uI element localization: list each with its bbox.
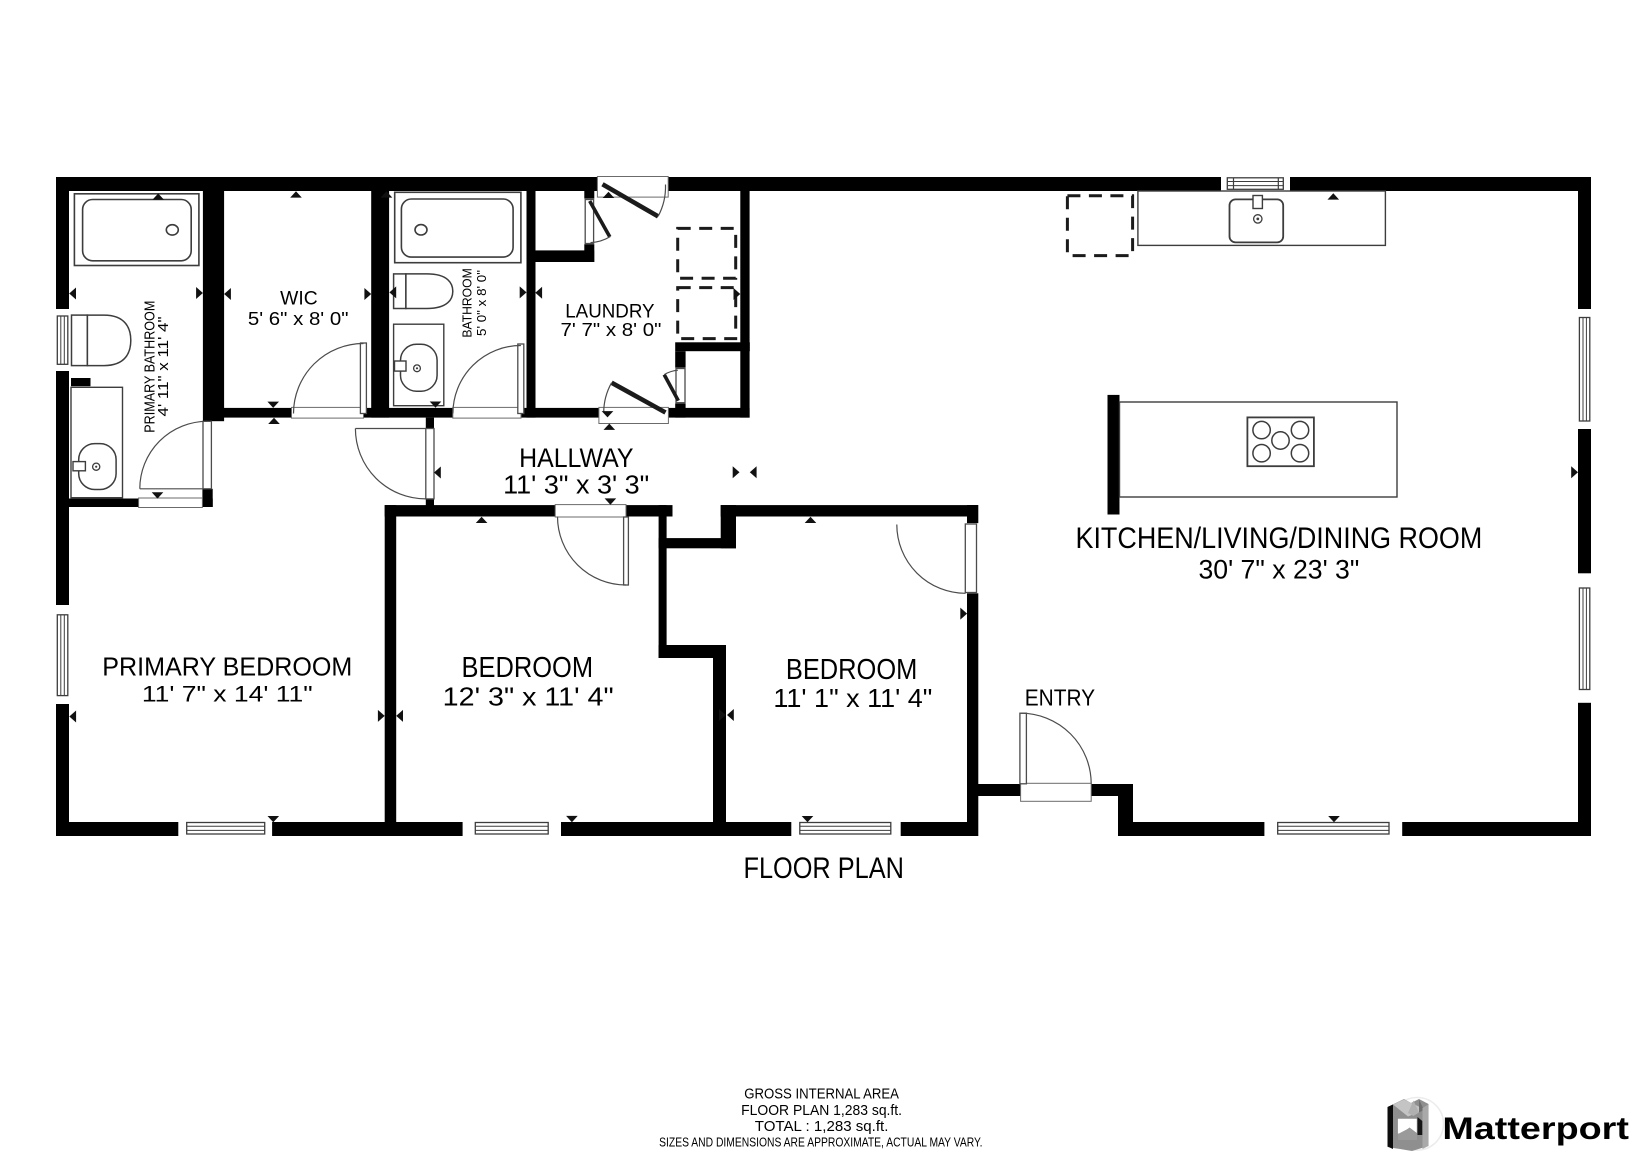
svg-text:12' 3" x 11' 4": 12' 3" x 11' 4" [443, 682, 614, 712]
svg-text:FLOOR PLAN: FLOOR PLAN [744, 852, 904, 885]
svg-text:FLOOR PLAN 1,283 sq.ft.: FLOOR PLAN 1,283 sq.ft. [741, 1103, 902, 1119]
svg-text:11' 3" x 3' 3": 11' 3" x 3' 3" [503, 471, 649, 499]
svg-text:4' 11" x 11' 4": 4' 11" x 11' 4" [156, 317, 172, 417]
svg-text:ENTRY: ENTRY [1025, 685, 1096, 711]
svg-text:TOTAL : 1,283 sq.ft.: TOTAL : 1,283 sq.ft. [755, 1119, 889, 1135]
svg-text:5' 0" x 8' 0": 5' 0" x 8' 0" [474, 270, 489, 336]
svg-text:HALLWAY: HALLWAY [519, 443, 633, 473]
svg-text:BEDROOM: BEDROOM [786, 654, 918, 686]
svg-text:11' 1" x 11' 4": 11' 1" x 11' 4" [773, 683, 932, 713]
svg-text:SIZES AND DIMENSIONS ARE APPRO: SIZES AND DIMENSIONS ARE APPROXIMATE, AC… [659, 1134, 982, 1149]
svg-text:PRIMARY BEDROOM: PRIMARY BEDROOM [102, 653, 352, 681]
svg-text:GROSS INTERNAL AREA: GROSS INTERNAL AREA [744, 1086, 899, 1102]
svg-text:30' 7" x 23' 3": 30' 7" x 23' 3" [1198, 554, 1359, 584]
svg-text:BATHROOM: BATHROOM [460, 268, 475, 337]
svg-text:KITCHEN/LIVING/DINING ROOM: KITCHEN/LIVING/DINING ROOM [1076, 522, 1483, 555]
svg-text:5' 6" x 8' 0": 5' 6" x 8' 0" [248, 308, 349, 329]
svg-text:7' 7" x 8' 0": 7' 7" x 8' 0" [561, 319, 662, 340]
svg-text:BEDROOM: BEDROOM [462, 652, 594, 684]
svg-text:11' 7" x 14' 11": 11' 7" x 14' 11" [142, 682, 313, 707]
svg-text:Matterport: Matterport [1442, 1110, 1629, 1146]
svg-text:WIC: WIC [280, 287, 318, 309]
